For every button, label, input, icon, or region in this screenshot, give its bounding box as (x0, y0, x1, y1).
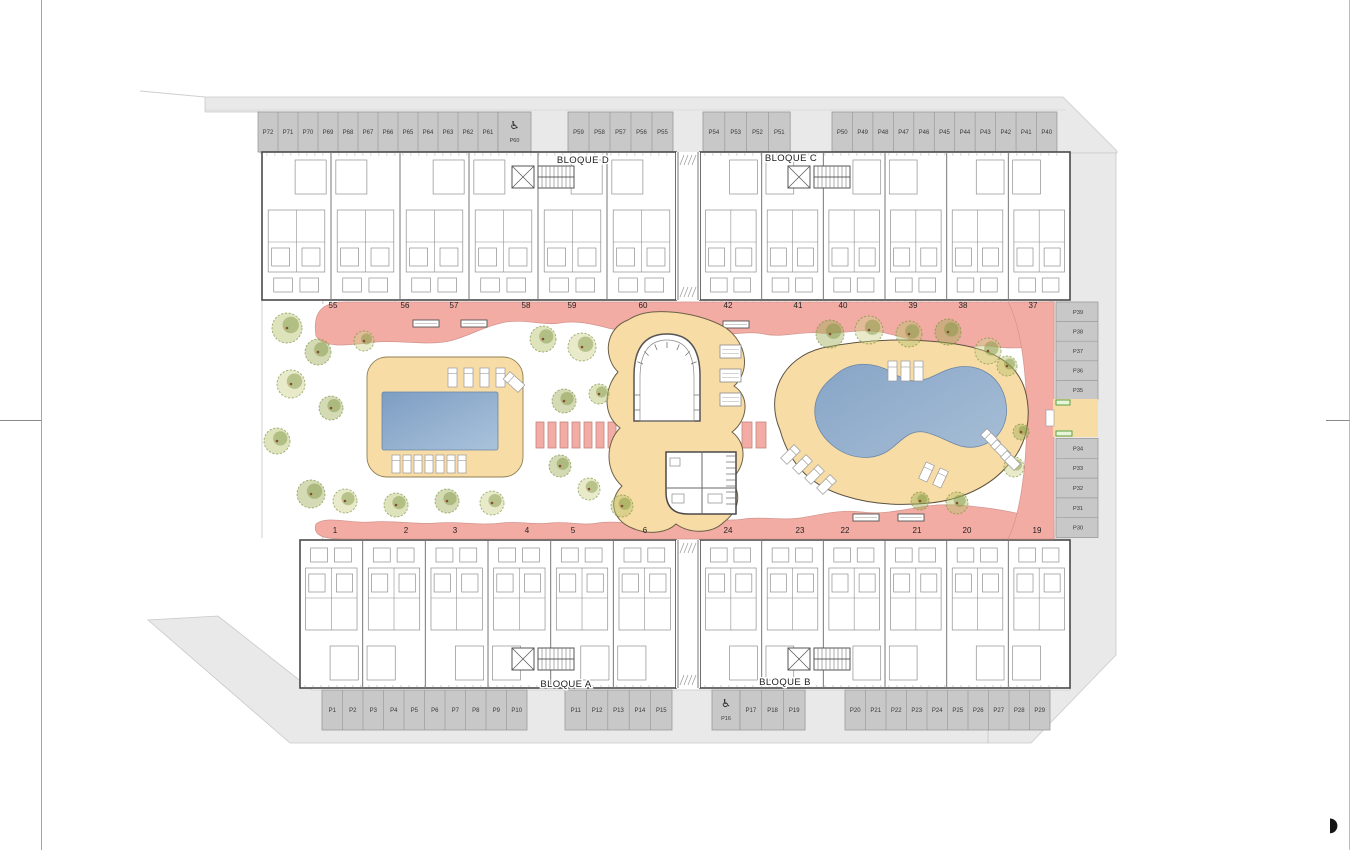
tree (354, 331, 374, 351)
parking-stall-label: P1 (329, 708, 337, 714)
tree-trunk (559, 465, 562, 468)
tree (272, 313, 302, 343)
tree (611, 495, 633, 517)
tree-inner (361, 334, 372, 345)
bench (720, 369, 741, 382)
tree-trunk (908, 333, 911, 336)
parking-stall-label: P48 (878, 130, 889, 136)
tree-inner (327, 399, 340, 412)
tree (480, 491, 504, 515)
left-pool (382, 392, 498, 450)
sun-lounger (480, 368, 489, 387)
parking-group: P54P53P52P51 (703, 112, 790, 152)
parking-stall-label: P4 (390, 708, 398, 714)
tree-trunk (317, 351, 320, 354)
tree-trunk (563, 400, 566, 403)
tree-trunk (987, 350, 990, 353)
stepping-pad (742, 422, 752, 448)
lounger-body (392, 455, 400, 473)
parking-stall-label: P61 (483, 130, 494, 136)
parking-stall-label: P67 (363, 130, 374, 136)
tree (997, 356, 1017, 376)
tree-inner (287, 374, 302, 389)
passage-floor (676, 152, 700, 300)
unit-number: 5 (571, 526, 576, 535)
tree-trunk (829, 333, 832, 336)
unit-number: 3 (453, 526, 458, 535)
tree (435, 489, 459, 513)
parking-stall-label: P2 (349, 708, 357, 714)
tree-trunk (344, 500, 347, 503)
stepping-pad (756, 422, 766, 448)
tree-trunk (446, 500, 449, 503)
sun-lounger (496, 368, 505, 387)
tree-inner (578, 337, 593, 352)
parking-stall-label: P14 (635, 708, 646, 714)
tree-trunk (310, 493, 313, 496)
unit-number: 39 (909, 301, 918, 310)
stepping-pad (548, 422, 556, 448)
parking-stall-label: P49 (857, 130, 868, 136)
parking-stall-label: P51 (774, 130, 785, 136)
parking-stall-label: P71 (283, 130, 294, 136)
sun-lounger (392, 455, 400, 473)
parking-group: P20P21P22P23P24P25P26P27P28P29 (845, 690, 1050, 730)
block-label-d: BLOQUE D (557, 155, 609, 166)
tree-trunk (286, 327, 289, 330)
parking-stall-label: P5 (411, 708, 419, 714)
lounger-body (914, 361, 923, 381)
parking-group: P1P2P3P4P5P6P7P8P9P10 (322, 690, 527, 730)
parking-stall-label: P23 (911, 708, 922, 714)
parking-stall-label: P39 (1073, 310, 1083, 316)
walkway-planter (413, 320, 439, 327)
parking-group: ♿P60 (498, 112, 531, 152)
parking-stall-label: P65 (403, 130, 414, 136)
unit-number: 21 (913, 526, 922, 535)
tree-trunk (947, 331, 950, 334)
parking-stall-label: P54 (709, 130, 720, 136)
block-label-c: BLOQUE C (765, 153, 817, 164)
parking-stall-label: P66 (383, 130, 394, 136)
unit-number: 4 (525, 526, 530, 535)
passage (676, 152, 700, 300)
walkway-planter (723, 321, 749, 328)
unit-number: 40 (839, 301, 848, 310)
tree (975, 338, 1001, 364)
parking-stall-label: P38 (1073, 329, 1083, 335)
parking-group: P72P71P70P69P68P67P66P65P64P63P62P61 (258, 112, 498, 152)
parking-stall-label: P37 (1073, 349, 1083, 355)
pool-house (666, 452, 736, 514)
tree (319, 396, 343, 420)
unit-number: 20 (963, 526, 972, 535)
parking-group: P50P49P48P47P46P45P44P43P42P41P40 (832, 112, 1057, 152)
tree-trunk (1006, 365, 1009, 368)
tree-trunk (276, 440, 279, 443)
lounger-body (447, 455, 455, 473)
parking-stall-label: P32 (1073, 486, 1083, 492)
parking-stall-label: P43 (980, 130, 991, 136)
tree (855, 316, 883, 344)
parking-stall-label: P20 (850, 708, 861, 714)
tree (305, 339, 331, 365)
tree-trunk (330, 407, 333, 410)
walkway-planter (898, 514, 924, 521)
tree-inner (273, 431, 287, 445)
parking-stall-label: P69 (323, 130, 334, 136)
tree-trunk (588, 488, 591, 491)
tree-inner (560, 392, 573, 405)
parking-stall-label: P44 (960, 130, 971, 136)
lounger-body (496, 368, 505, 387)
bench (720, 345, 741, 358)
tree-trunk (290, 383, 293, 386)
stepping-pad (596, 422, 604, 448)
unit-number: 56 (401, 301, 410, 310)
lounger-body (480, 368, 489, 387)
tree-inner (984, 341, 998, 355)
parking-stall-label: P53 (730, 130, 741, 136)
tree (946, 492, 968, 514)
tree-trunk (868, 329, 871, 332)
parking-stall-label: P63 (443, 130, 454, 136)
tree-inner (392, 496, 405, 509)
site-boundary-diagonal (140, 91, 205, 97)
unit-number: 37 (1029, 301, 1038, 310)
block-label-b: BLOQUE B (759, 677, 811, 688)
parking-stall-label: P3 (370, 708, 378, 714)
unit-number: 38 (959, 301, 968, 310)
tree-trunk (919, 500, 922, 503)
sun-lounger (403, 455, 411, 473)
tree (264, 428, 290, 454)
parking-stall-label: P45 (939, 130, 950, 136)
tree-inner (341, 492, 354, 505)
parking-stall-accessible (712, 690, 740, 730)
tree (911, 492, 929, 510)
parking-stall-label: P60 (510, 138, 520, 144)
stair-core (512, 648, 574, 670)
tree (589, 384, 609, 404)
tree (549, 455, 571, 477)
parking-stall-label: P40 (1041, 130, 1052, 136)
tree-inner (596, 387, 607, 398)
parking-stall-label: P18 (767, 708, 778, 714)
parking-group: P11P12P13P14P15 (565, 690, 672, 730)
plaza-bench (720, 393, 741, 406)
sun-lounger (436, 455, 444, 473)
tree-inner (905, 324, 919, 338)
unit-number: 59 (568, 301, 577, 310)
parking-stall-label: P31 (1073, 506, 1083, 512)
unit-number: 22 (841, 526, 850, 535)
tree-inner (954, 495, 966, 507)
parking-stall-label: P11 (571, 708, 582, 714)
page-curl-mark[interactable] (1330, 819, 1337, 834)
parking-group: P17P18P19 (740, 690, 805, 730)
parking-stall-label: P17 (746, 708, 757, 714)
parking-stall-label: P12 (592, 708, 603, 714)
parking-group: P34P33P32P31P30 (1056, 439, 1098, 538)
tree-inner (826, 324, 841, 339)
tree (578, 478, 600, 500)
parking-stall-label: P68 (343, 130, 354, 136)
passage-floor (676, 540, 700, 688)
sun-lounger (414, 455, 422, 473)
stair-core (788, 648, 850, 670)
unit-number: 60 (639, 301, 648, 310)
tree-trunk (542, 338, 545, 341)
unit-number: 55 (329, 301, 338, 310)
parking-stall-label: P33 (1073, 466, 1083, 472)
site-plan-drawing: P72P71P70P69P68P67P66P65P64P63P62P61♿P60… (0, 0, 1360, 850)
parking-stall-label: P13 (613, 708, 624, 714)
entrance-gate-door (1046, 410, 1054, 426)
tree (1013, 424, 1029, 440)
unit-number: 58 (522, 301, 531, 310)
stair-core (512, 166, 574, 188)
lounger-body (403, 455, 411, 473)
sun-lounger (448, 368, 457, 387)
tree-trunk (1020, 431, 1023, 434)
tree-trunk (491, 502, 494, 505)
sun-lounger (914, 361, 923, 381)
parking-stall-label: P58 (594, 130, 605, 136)
parking-stall-label: P52 (752, 130, 763, 136)
parking-stall-label: P10 (511, 708, 522, 714)
parking-stall-label: P34 (1073, 446, 1084, 452)
unit-number: 24 (724, 526, 733, 535)
tree-trunk (598, 393, 601, 396)
unit-number: 42 (724, 301, 733, 310)
tree-inner (944, 322, 958, 336)
tree-inner (283, 317, 300, 334)
walkway-planter (853, 514, 879, 521)
tree-inner (1019, 426, 1028, 435)
parking-stall-label: P56 (636, 130, 647, 136)
parking-stall-label: P36 (1073, 369, 1083, 375)
tree-inner (539, 329, 553, 343)
parking-stall-label: P57 (615, 130, 626, 136)
parking-stall-label: P27 (993, 708, 1004, 714)
tree-inner (586, 481, 598, 493)
tree (297, 480, 325, 508)
lounger-body (464, 368, 473, 387)
parking-group: P59P58P57P56P55 (568, 112, 673, 152)
parking-stall-label: P72 (263, 130, 274, 136)
parking-stall-label: P26 (973, 708, 984, 714)
walkway-planter (461, 320, 487, 327)
stair-core (788, 166, 850, 188)
lounger-body (888, 361, 897, 381)
arch-structure (634, 334, 700, 421)
plaza-benches (720, 345, 741, 406)
tree-inner (314, 342, 328, 356)
parking-stall-label: P41 (1021, 130, 1032, 136)
tree-trunk (621, 505, 624, 508)
accessible-parking-icon: ♿ (721, 698, 731, 710)
tree-inner (307, 484, 322, 499)
unit-number: 41 (794, 301, 803, 310)
parking-stall-label: P16 (721, 716, 731, 722)
stepping-pad (536, 422, 544, 448)
unit-number: 1 (333, 526, 338, 535)
stepping-pad (584, 422, 592, 448)
lounger-body (414, 455, 422, 473)
parking-stall-label: P9 (493, 708, 501, 714)
parking-stall-label: P50 (837, 130, 848, 136)
lounger-body (425, 455, 433, 473)
tree (530, 326, 556, 352)
parking-stall-accessible (498, 112, 531, 152)
lounger-body (436, 455, 444, 473)
tree-inner (443, 492, 456, 505)
accessible-parking-icon: ♿ (510, 120, 520, 132)
plaza-bench (720, 369, 741, 382)
parking-stall-label: P55 (657, 130, 668, 136)
tree-inner (1004, 359, 1015, 370)
parking-stall-label: P46 (919, 130, 930, 136)
tree-inner (488, 494, 501, 507)
tree (896, 321, 922, 347)
lounger-body (448, 368, 457, 387)
stepping-pad (572, 422, 580, 448)
parking-stall-label: P21 (870, 708, 881, 714)
parking-stall-label: P19 (789, 708, 800, 714)
sun-lounger (447, 455, 455, 473)
tree (568, 333, 596, 361)
unit-number: 19 (1033, 526, 1042, 535)
parking-stall-label: P15 (656, 708, 667, 714)
unit-number: 23 (796, 526, 805, 535)
tree-inner (619, 498, 631, 510)
parking-stall-label: P59 (573, 130, 584, 136)
parking-stall-label: P30 (1073, 526, 1083, 532)
parking-stall-label: P7 (452, 708, 460, 714)
tree-inner (917, 494, 927, 504)
tree-inner (865, 320, 880, 335)
parking-stall-label: P22 (891, 708, 902, 714)
passage (676, 540, 700, 688)
sun-lounger (464, 368, 473, 387)
parking-stall-label: P47 (898, 130, 909, 136)
parking-stall-label: P29 (1034, 708, 1045, 714)
sun-lounger (425, 455, 433, 473)
unit-number: 57 (450, 301, 459, 310)
tree-trunk (956, 502, 959, 505)
tree-trunk (395, 504, 398, 507)
tree (333, 489, 357, 513)
tree (552, 389, 576, 413)
tree (816, 320, 844, 348)
lounger-body (901, 361, 910, 381)
parking-stall-label: P64 (423, 130, 434, 136)
tree (384, 493, 408, 517)
parking-stall-label: P8 (472, 708, 480, 714)
parking-group: ♿P16 (712, 690, 740, 730)
sun-lounger (888, 361, 897, 381)
unit-number: 2 (404, 526, 409, 535)
parking-stall-label: P35 (1073, 388, 1083, 394)
parking-stall-label: P6 (431, 708, 439, 714)
lounger-body (458, 455, 466, 473)
tree (935, 319, 961, 345)
sun-lounger (458, 455, 466, 473)
parking-stall-label: P62 (463, 130, 474, 136)
plaza-bench (720, 345, 741, 358)
parking-stall-label: P42 (1000, 130, 1011, 136)
parking-stall-label: P28 (1014, 708, 1025, 714)
parking-stall-label: P24 (932, 708, 943, 714)
sun-lounger (901, 361, 910, 381)
parking-stall-label: P25 (952, 708, 963, 714)
tree-inner (557, 458, 569, 470)
block-label-a: BLOQUE A (540, 679, 592, 690)
parking-stall-label: P70 (303, 130, 314, 136)
stepping-pad (560, 422, 568, 448)
tree (277, 370, 305, 398)
tree-trunk (363, 340, 366, 343)
parking-group: P39P38P37P36P35 (1056, 302, 1098, 400)
unit-number: 6 (643, 526, 648, 535)
bench (720, 393, 741, 406)
tree-trunk (581, 346, 584, 349)
